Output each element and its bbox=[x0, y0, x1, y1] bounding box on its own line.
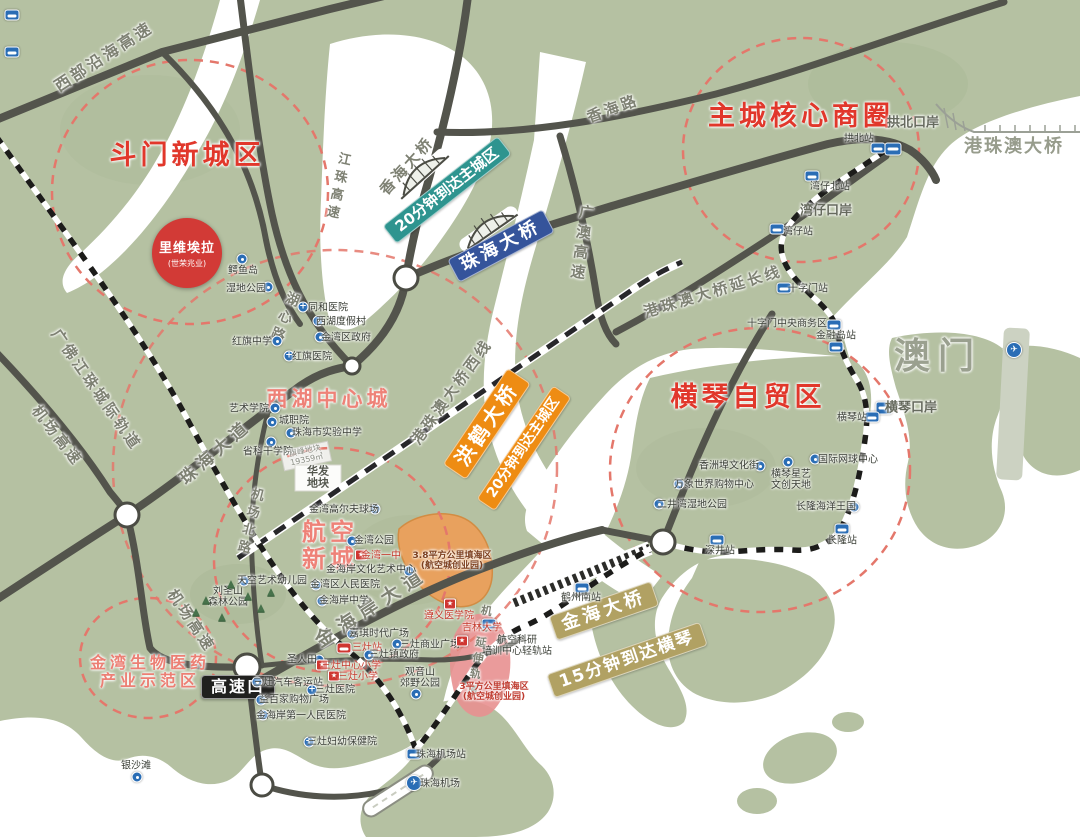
poi-label: 珠海市实验中学 bbox=[292, 427, 362, 438]
station-label: 深井站 bbox=[705, 545, 735, 556]
station-icon bbox=[835, 524, 850, 535]
reclamation-label-line: 3平方公里填海区 bbox=[459, 682, 528, 692]
poi-label-line: 文创天地 bbox=[771, 480, 811, 491]
station-label: 十字门站 bbox=[788, 283, 828, 294]
road-label: 江珠高速 bbox=[321, 150, 350, 223]
station-label: 湾仔北站 bbox=[810, 181, 850, 192]
poi-label: 观音山郊野公园 bbox=[400, 667, 440, 689]
poi-label: 金海岸中学 bbox=[319, 595, 369, 606]
label-layer: 里维埃拉 (世荣兆业) 斗门新城区主城核心商圈横琴自贸区西湖中心城航空新城金湾生… bbox=[0, 0, 1080, 837]
station-label: 横琴站 bbox=[837, 412, 867, 423]
poi-label: 国际网球中心 bbox=[818, 454, 878, 465]
poi-icon bbox=[267, 417, 278, 428]
poi-label-line: 横琴星艺 bbox=[771, 469, 811, 480]
road-label: 机场高速 bbox=[28, 402, 86, 469]
landmark-subtitle: (世荣兆业) bbox=[168, 258, 206, 269]
station-label: 珠海机场 bbox=[420, 778, 460, 789]
poi-label: 圣人田 bbox=[287, 654, 317, 665]
zhuhai-location-map: 里维埃拉 (世荣兆业) 斗门新城区主城核心商圈横琴自贸区西湖中心城航空新城金湾生… bbox=[0, 0, 1080, 837]
poi-label: 香洲埠文化街 bbox=[699, 460, 759, 471]
region-label: 西湖中心城 bbox=[267, 388, 392, 412]
poi-label: 鳄鱼岛 bbox=[228, 265, 258, 276]
road-label: 香海路 bbox=[585, 92, 642, 126]
poi-icon bbox=[411, 689, 422, 700]
poi-label: 红旗中学 bbox=[232, 336, 272, 347]
region-label-line: 产业示范区 bbox=[90, 672, 210, 690]
poi-icon bbox=[132, 772, 143, 783]
landmark-name: 里维埃拉 bbox=[159, 237, 215, 256]
tree-icon: ▲ bbox=[218, 612, 226, 623]
station-label: 长隆站 bbox=[827, 535, 857, 546]
poi-label: 艺术学院 bbox=[229, 403, 269, 414]
route-badge: 珠海大桥 bbox=[447, 209, 555, 283]
region-label: 横琴自贸区 bbox=[671, 383, 826, 413]
station-icon bbox=[805, 171, 820, 182]
poi-label: 金湾高尔夫球场 bbox=[309, 504, 379, 515]
station-label: 十字门中央商务区 bbox=[747, 318, 827, 329]
reclamation-label-line: (航空城创业园) bbox=[459, 692, 528, 702]
station-icon bbox=[5, 47, 20, 58]
poi-label: 万象世界购物中心 bbox=[674, 479, 754, 490]
poi-label: 银沙滩 bbox=[121, 760, 151, 771]
road-label: 西部沿海高速 bbox=[51, 18, 156, 95]
poi-label: 吉林大学 bbox=[462, 622, 502, 633]
airport-icon bbox=[1006, 342, 1022, 358]
station-icon bbox=[5, 10, 20, 21]
station-label: 珠海机场站 bbox=[416, 749, 466, 760]
poi-label: 三灶妇幼保健院 bbox=[307, 736, 377, 747]
tree-icon: ▲ bbox=[267, 587, 275, 598]
poi-label: 湿地公园 bbox=[226, 283, 266, 294]
parcel-label-line: 地块 bbox=[307, 478, 329, 490]
area-label: 湾仔口岸 bbox=[800, 205, 852, 220]
tree-icon: ▲ bbox=[192, 607, 200, 618]
poi-label: 遵义医学院 bbox=[424, 610, 474, 621]
poi-label: 三灶镇政府 bbox=[369, 649, 419, 660]
poi-label: 红旗医院 bbox=[292, 351, 332, 362]
region-label: 斗门新城区 bbox=[110, 141, 265, 171]
tree-icon: ▲ bbox=[244, 591, 252, 602]
station-icon bbox=[337, 643, 352, 654]
poi-label: 嘉琪时代广场 bbox=[349, 628, 409, 639]
route-badge: 金海大桥 bbox=[549, 581, 660, 641]
reclamation-label: 3平方公里填海区(航空城创业园) bbox=[459, 682, 528, 702]
poi-label: 金海岸第一人民医院 bbox=[256, 710, 346, 721]
poi-label: 省科干学院 bbox=[243, 446, 293, 457]
road-label: 广澳高速 bbox=[567, 203, 595, 285]
poi-label: 益百家购物广场 bbox=[259, 694, 329, 705]
tree-icon: ▲ bbox=[202, 595, 210, 606]
station-label-line: 航空科研 bbox=[482, 635, 552, 646]
poi-label: 金海岸文化艺术中心 bbox=[326, 564, 416, 575]
poi-icon bbox=[783, 457, 794, 468]
region-label-line: 金湾生物医药 bbox=[90, 654, 210, 672]
parcel-label: 华发地块 bbox=[307, 466, 329, 491]
area-label: 拱北口岸 bbox=[887, 117, 939, 132]
reclamation-label: 3.8平方公里填海区(航空城创业园) bbox=[413, 551, 492, 571]
poi-label: 金湾区政府 bbox=[321, 332, 371, 343]
region-label: 金湾生物医药产业示范区 bbox=[90, 654, 210, 690]
landmark-riviera: 里维埃拉 (世荣兆业) bbox=[152, 218, 222, 288]
poi-label: 金湾一中 bbox=[361, 550, 401, 561]
reclamation-label-line: (航空城创业园) bbox=[413, 561, 492, 571]
tree-icon: ▲ bbox=[257, 603, 265, 614]
station-icon bbox=[885, 143, 902, 156]
school-icon: ★ bbox=[456, 636, 468, 647]
station-label: 横琴口岸 bbox=[885, 402, 937, 417]
station-icon bbox=[829, 342, 844, 353]
station-label: 拱北站 bbox=[844, 133, 874, 144]
poi-label: 横琴星艺文创天地 bbox=[771, 469, 811, 491]
poi-label-line: 森林公园 bbox=[208, 597, 248, 608]
poi-label: 二井湾湿地公园 bbox=[657, 499, 727, 510]
area-label: 港珠澳大桥 bbox=[964, 137, 1064, 157]
reclamation-label-line: 3.8平方公里填海区 bbox=[413, 551, 492, 561]
poi-label-line: 郊野公园 bbox=[400, 678, 440, 689]
station-icon bbox=[827, 320, 842, 331]
poi-label: 金湾区人民医院 bbox=[310, 579, 380, 590]
area-label: 澳门 bbox=[894, 337, 982, 377]
poi-icon bbox=[270, 403, 281, 414]
station-label: 航空科研培训中心轻轨站 bbox=[482, 635, 552, 657]
station-label: 鹤州南站 bbox=[561, 592, 601, 603]
poi-label: 长隆海洋王国 bbox=[796, 501, 856, 512]
station-label-line: 培训中心轻轨站 bbox=[482, 646, 552, 657]
poi-label-line: 观音山 bbox=[400, 667, 440, 678]
station-icon bbox=[710, 535, 725, 546]
region-label: 主城核心商圈 bbox=[708, 102, 894, 132]
station-label: 金融岛站 bbox=[816, 330, 856, 341]
poi-label: 西湖度假村 bbox=[316, 316, 366, 327]
road-label: 机场北路 bbox=[232, 485, 264, 558]
school-icon: ★ bbox=[444, 599, 456, 610]
hospital-icon: + bbox=[298, 302, 309, 313]
station-label: 湾仔站 bbox=[783, 226, 813, 237]
tree-icon: ▲ bbox=[227, 579, 235, 590]
route-badge: 20分钟到达主城区 bbox=[383, 136, 512, 244]
road-label: 港珠澳大桥延长线 bbox=[642, 263, 785, 321]
poi-icon bbox=[237, 254, 248, 265]
poi-label: 城职院 bbox=[279, 415, 309, 426]
poi-label: 同和医院 bbox=[308, 302, 348, 313]
poi-icon bbox=[272, 336, 283, 347]
poi-label: 金湾公园 bbox=[354, 535, 394, 546]
poi-label: 三灶小学 bbox=[338, 671, 378, 682]
